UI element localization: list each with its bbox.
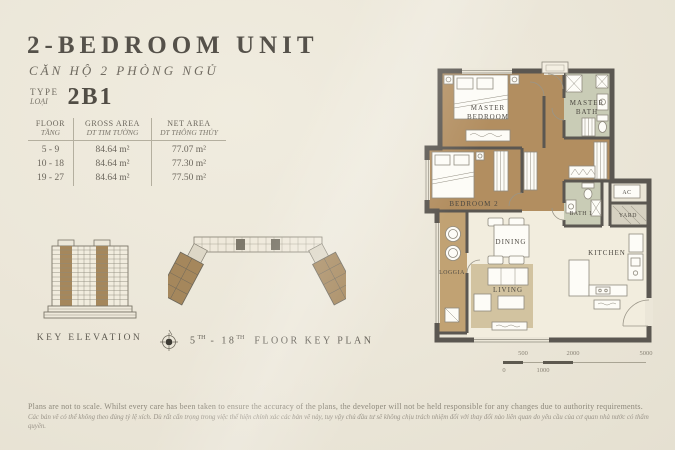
unit-type-badge: TYPE LOẠI 2B1 (30, 85, 114, 109)
table-cell-floor: 19 - 27 (28, 172, 74, 186)
col-header-floor: FLOOR TẦNG (28, 118, 74, 141)
page-title: 2-BEDROOM UNIT (27, 32, 319, 60)
area-table: FLOOR TẦNG GROSS AREA DT TIM TƯỜNG NET A… (28, 118, 226, 186)
highlight-column (60, 246, 72, 306)
scale-label: 0 (502, 367, 505, 374)
key-elevation-figure (40, 238, 140, 328)
table-cell-net: 77.50 m² (152, 172, 226, 186)
scale-label: 5000 (640, 350, 653, 357)
highlight-column (96, 246, 108, 306)
room-label-bath1: BATH 1 (569, 211, 592, 217)
scale-label: 500 (518, 350, 528, 357)
table-cell-floor: 10 - 18 (28, 158, 74, 172)
room-label-master-bedroom: BEDROOM (467, 113, 509, 121)
room-label-loggia: LOGGIA (439, 270, 465, 276)
type-label: TYPE LOẠI (30, 88, 59, 106)
room-label-kitchen: KITCHEN (588, 249, 626, 257)
floor-key-plan-label: 5TH - 18TH FLOOR KEY PLAN (158, 329, 373, 353)
footer-disclaimer: Plans are not to scale. Whilst every car… (28, 402, 660, 431)
table-cell-net: 77.07 m² (152, 141, 226, 158)
disclaimer-vi: Các bản vẽ có thể không theo đúng tỷ lệ … (28, 413, 660, 431)
table-cell-gross: 84.64 m² (74, 141, 152, 158)
scale-label: 1000 (537, 367, 550, 374)
room-label-dining: DINING (496, 238, 527, 246)
room-label-master-bath: BATH (576, 108, 598, 116)
room-label-bedroom2: BEDROOM 2 (449, 200, 498, 208)
key-elevation-label: KEY ELEVATION (32, 333, 147, 343)
compass-icon (158, 329, 180, 353)
table-cell-floor: 5 - 9 (28, 141, 74, 158)
table-cell-gross: 84.64 m² (74, 172, 152, 186)
scale-label: 2000 (567, 350, 580, 357)
disclaimer-en: Plans are not to scale. Whilst every car… (28, 402, 660, 412)
page-subtitle: CĂN HỘ 2 PHÒNG NGỦ (29, 63, 219, 79)
col-header-net: NET AREA DT THÔNG THỦY (152, 118, 226, 141)
floor-key-plan-figure (168, 232, 346, 328)
room-label-living: LIVING (493, 286, 523, 294)
room-label-master-bedroom: MASTER (471, 104, 505, 112)
unit-type-value: 2B1 (68, 85, 114, 109)
table-cell-gross: 84.64 m² (74, 158, 152, 172)
brochure-page: 2-BEDROOM UNIT CĂN HỘ 2 PHÒNG NGỦ TYPE L… (0, 0, 675, 450)
col-header-gross: GROSS AREA DT TIM TƯỜNG (74, 118, 152, 141)
room-label-master-bath: MASTER (570, 99, 604, 107)
table-cell-net: 77.30 m² (152, 158, 226, 172)
scale-bar: 500 2000 5000 0 1000 (498, 348, 656, 378)
floor-plan-figure: MASTER BEDROOM MASTER BATH BEDROOM 2 DIN… (424, 48, 674, 360)
room-label-ac: AC (622, 190, 631, 196)
room-label-yard: YARD (619, 213, 637, 219)
